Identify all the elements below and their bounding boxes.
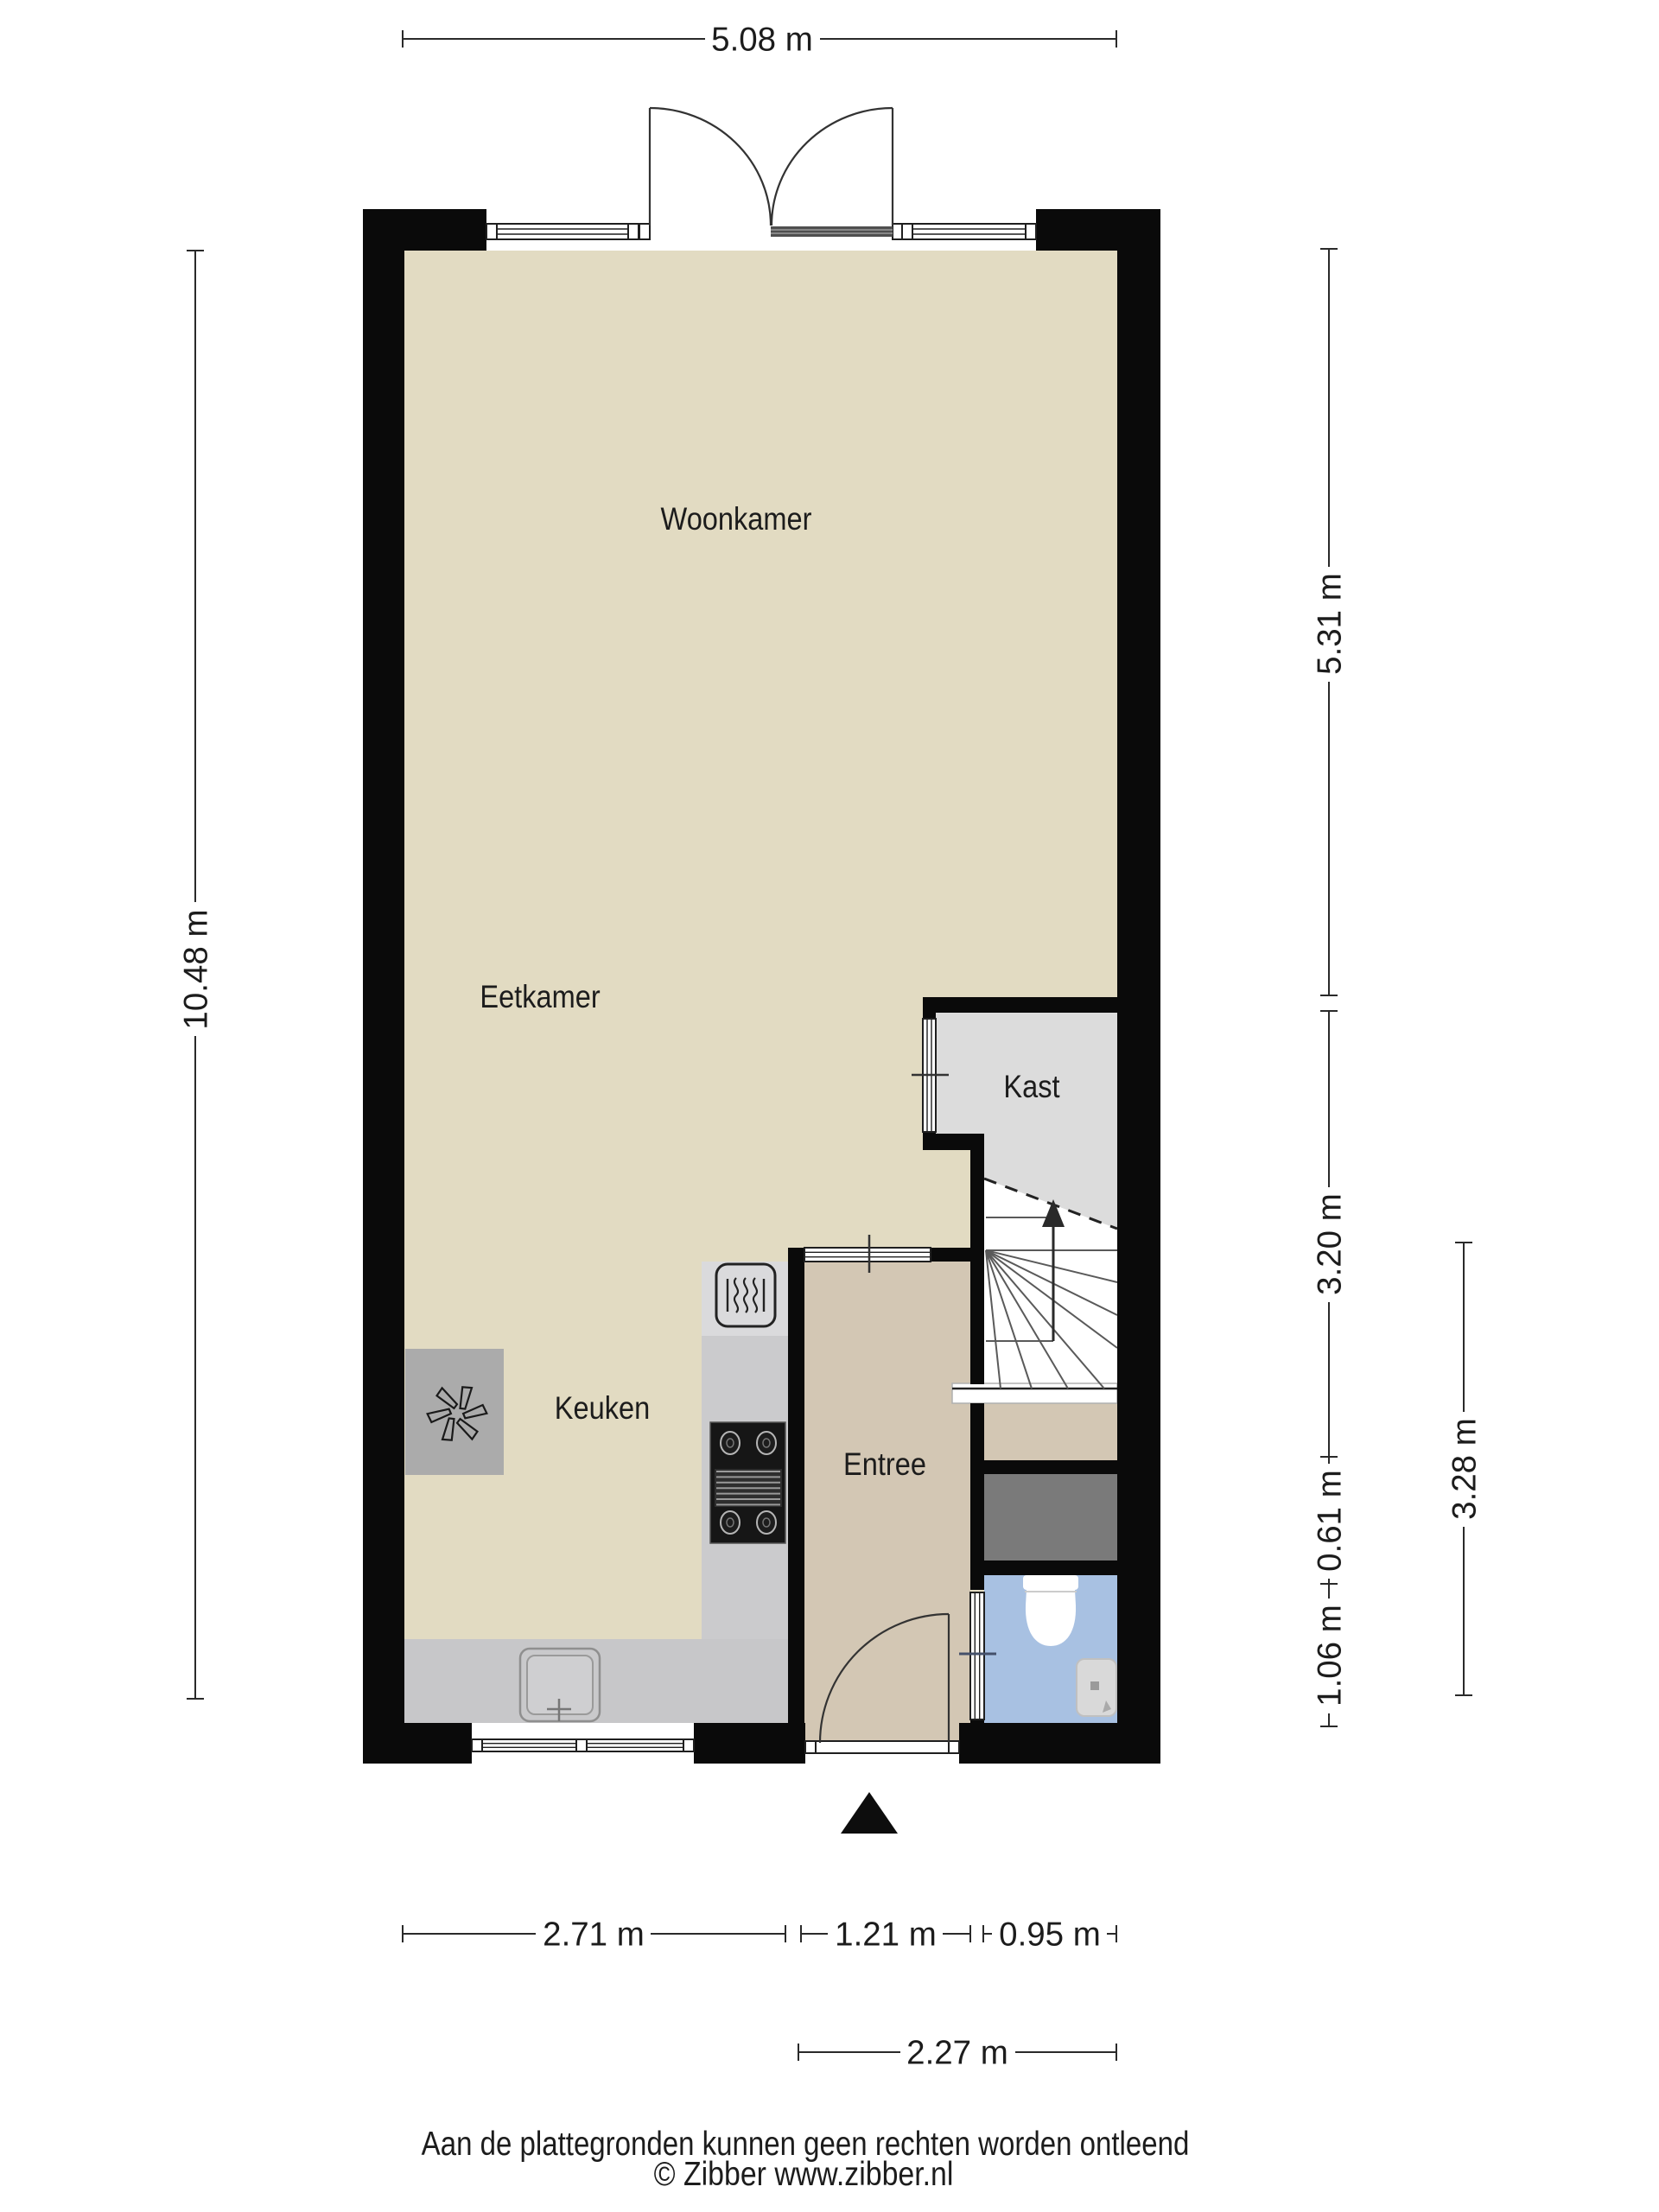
svg-text:Kast: Kast bbox=[1003, 1069, 1059, 1104]
svg-text:3.20 m: 3.20 m bbox=[1312, 1193, 1349, 1295]
svg-text:10.48 m: 10.48 m bbox=[178, 909, 215, 1029]
svg-text:1.06 m: 1.06 m bbox=[1312, 1605, 1349, 1707]
svg-text:1.21 m: 1.21 m bbox=[835, 1916, 937, 1954]
svg-text:2.27 m: 2.27 m bbox=[906, 2035, 1008, 2072]
svg-text:2.71 m: 2.71 m bbox=[543, 1916, 645, 1954]
svg-text:5.08 m: 5.08 m bbox=[711, 22, 813, 59]
svg-text:Eetkamer: Eetkamer bbox=[480, 979, 601, 1014]
svg-text:© Zibber www.zibber.nl: © Zibber www.zibber.nl bbox=[654, 2155, 954, 2193]
svg-text:Woonkamer: Woonkamer bbox=[661, 501, 812, 537]
svg-text:3.28 m: 3.28 m bbox=[1446, 1418, 1484, 1520]
svg-text:0.61 m: 0.61 m bbox=[1312, 1470, 1349, 1572]
svg-text:5.31 m: 5.31 m bbox=[1312, 573, 1349, 675]
svg-text:Keuken: Keuken bbox=[555, 1390, 650, 1426]
svg-text:0.95 m: 0.95 m bbox=[999, 1916, 1101, 1954]
svg-text:Entree: Entree bbox=[843, 1446, 926, 1482]
